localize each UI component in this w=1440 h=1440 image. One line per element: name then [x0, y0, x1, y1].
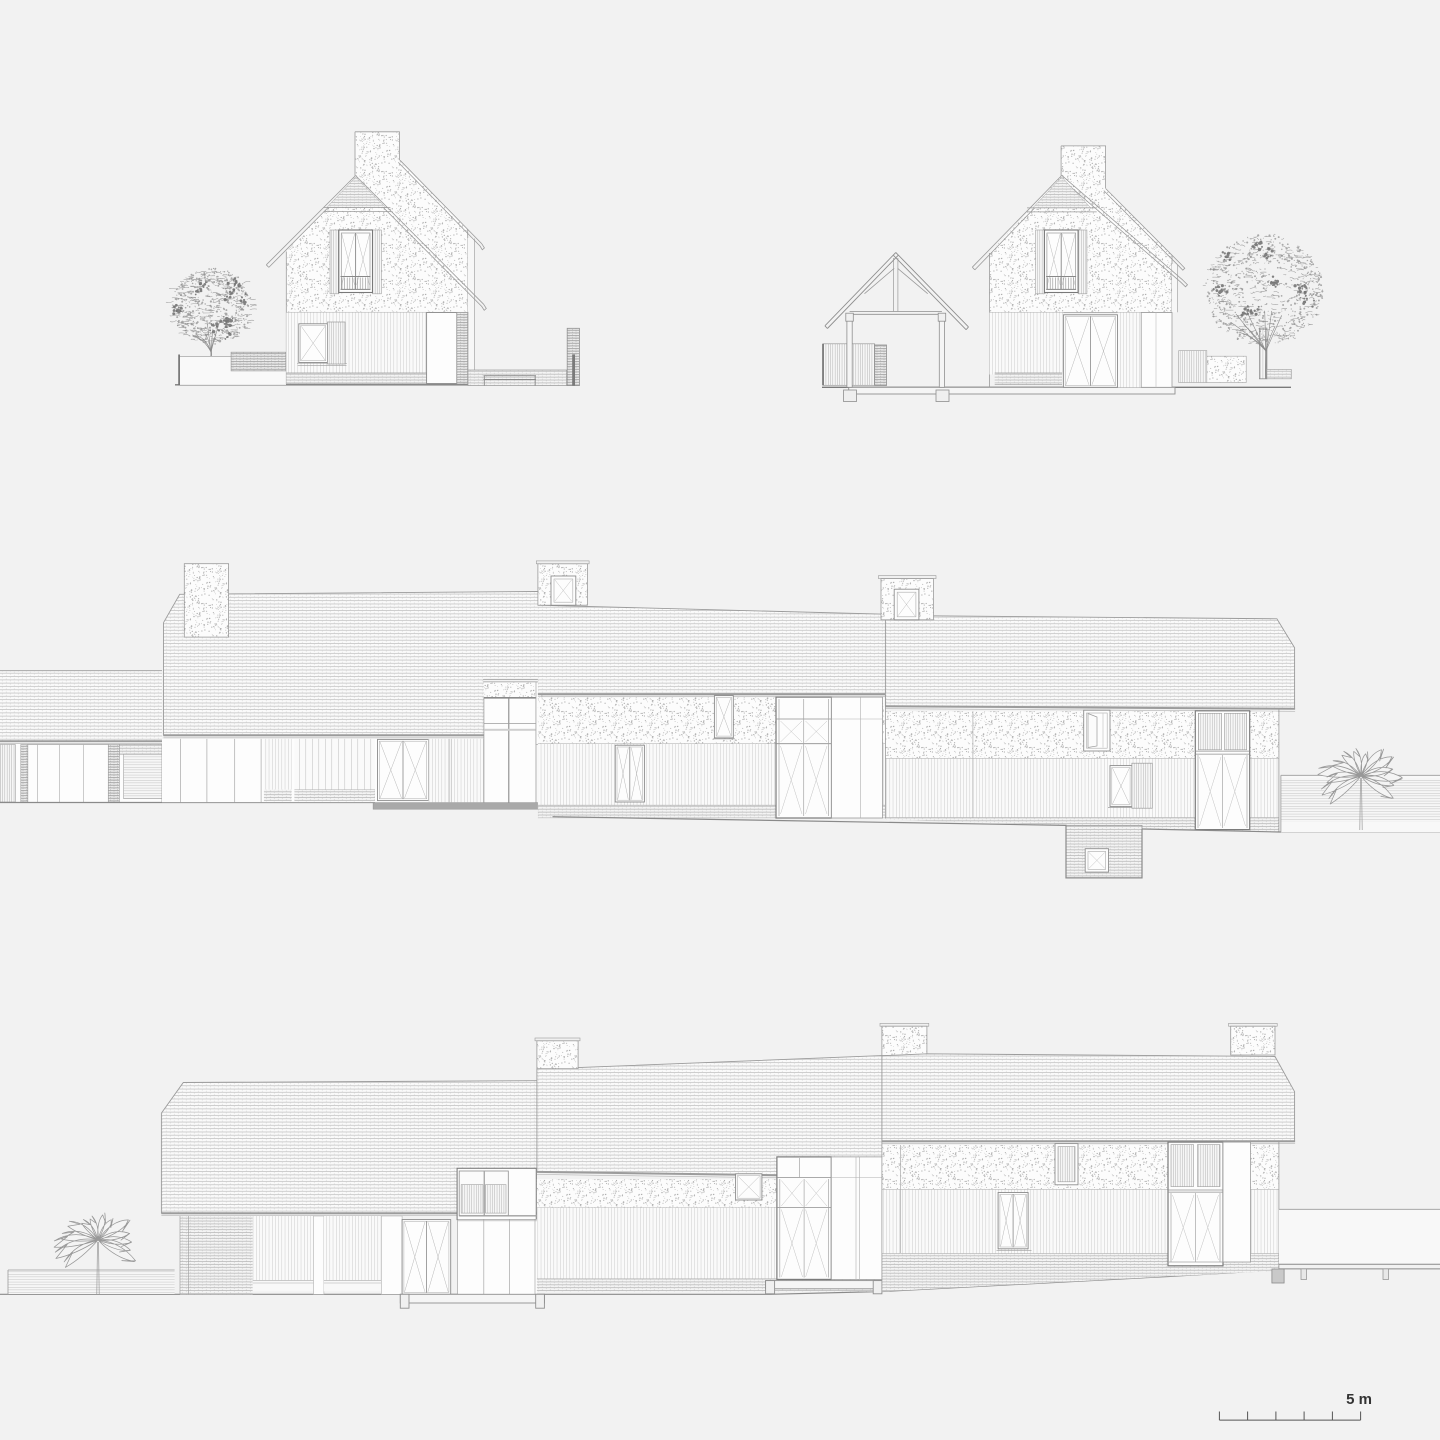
svg-text:5 m: 5 m	[1346, 1391, 1372, 1408]
